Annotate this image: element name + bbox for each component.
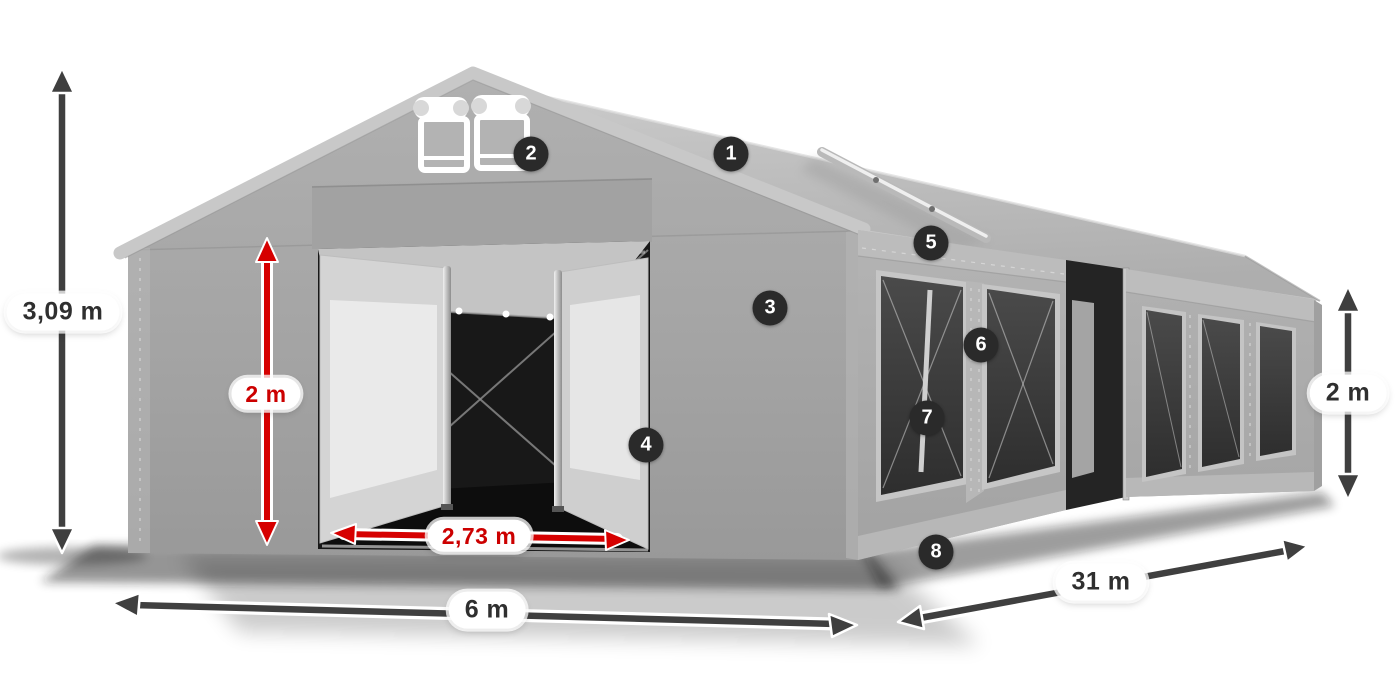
- side-wall-front: [858, 230, 1066, 560]
- door-pole-right: [554, 270, 562, 510]
- roof-vent-left: [413, 97, 469, 170]
- tent-diagram-stage: 3,09 m 2 m 2,73 m 6 m 31 m 2 m 1 2 3 4 5…: [0, 0, 1400, 700]
- tent-width-label: 6 m: [449, 592, 526, 629]
- tent-length-label: 31 m: [1056, 564, 1147, 601]
- side-pole-cover: [966, 281, 984, 503]
- side-height-label: 2 m: [1310, 375, 1387, 412]
- entrance-width-label: 2,73 m: [428, 520, 531, 552]
- entrance-height-label: 2 m: [231, 378, 300, 410]
- front-door-opening: [318, 241, 650, 552]
- side-wall-rear: [1126, 269, 1322, 497]
- door-pole-left: [443, 266, 451, 508]
- badge-2: 2: [514, 137, 549, 172]
- badge-6: 6: [964, 328, 999, 363]
- badge-8: 8: [919, 535, 954, 570]
- badge-1: 1: [714, 137, 749, 172]
- side-opening: [1066, 260, 1129, 510]
- badge-7: 7: [910, 401, 945, 436]
- total-height-label: 3,09 m: [7, 294, 120, 331]
- badge-5: 5: [914, 226, 949, 261]
- badge-3: 3: [753, 291, 788, 326]
- entrance-header-beam: [312, 178, 652, 249]
- tent-illustration: [0, 0, 1400, 700]
- badge-4: 4: [629, 428, 664, 463]
